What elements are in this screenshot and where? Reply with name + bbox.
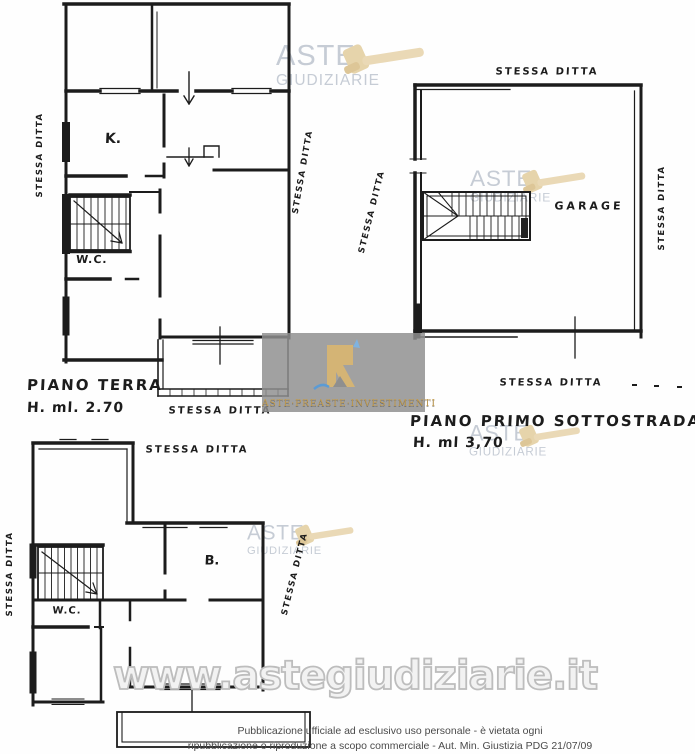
stessa-ditta-label: STESSA DITTA xyxy=(145,445,248,456)
plan-height-piano-primo: H. ml 3,70 xyxy=(413,435,505,451)
disclaimer-line-1: Pubblicazione ufficiale ad esclusivo uso… xyxy=(85,724,695,739)
lower-floorplan xyxy=(0,430,350,754)
agency-watermark-text: ASTE·PREASTE·INVESTIMENTI xyxy=(262,399,425,409)
scanned-floorplan-page: ASTE GIUDIZIARIE ASTE GIUDIZIARIE ASTE G… xyxy=(0,0,695,754)
stessa-ditta-label: STESSA DITTA xyxy=(495,67,598,78)
plan-title-piano-terra: PIANO TERRA xyxy=(27,376,164,394)
plan-height-piano-terra: H. ml. 2.70 xyxy=(27,400,125,416)
disclaimer-line-2: ripubblicazione o riproduzione a scopo c… xyxy=(85,739,695,754)
agency-monogram-icon xyxy=(312,337,374,395)
plan-title-piano-primo: PIANO PRIMO SOTTOSTRADA xyxy=(410,412,695,430)
stessa-ditta-label: STESSA DITTA xyxy=(168,406,271,417)
room-label-kitchen: K. xyxy=(105,131,122,147)
site-url-watermark: www.astegiudiziarie.it xyxy=(88,653,622,699)
room-label-bath: B. xyxy=(204,554,220,569)
room-label-wc: W.C. xyxy=(52,606,82,617)
stessa-ditta-label: STESSA DITTA xyxy=(35,112,45,198)
stessa-ditta-label: STESSA DITTA xyxy=(657,165,667,251)
stessa-ditta-label: STESSA DITTA xyxy=(5,531,15,617)
stessa-ditta-label: STESSA DITTA xyxy=(499,378,602,389)
room-label-garage: GARAGE xyxy=(554,200,624,213)
room-label-wc: W.C. xyxy=(76,253,108,266)
agency-watermark-badge: ASTE·PREASTE·INVESTIMENTI xyxy=(262,333,425,412)
